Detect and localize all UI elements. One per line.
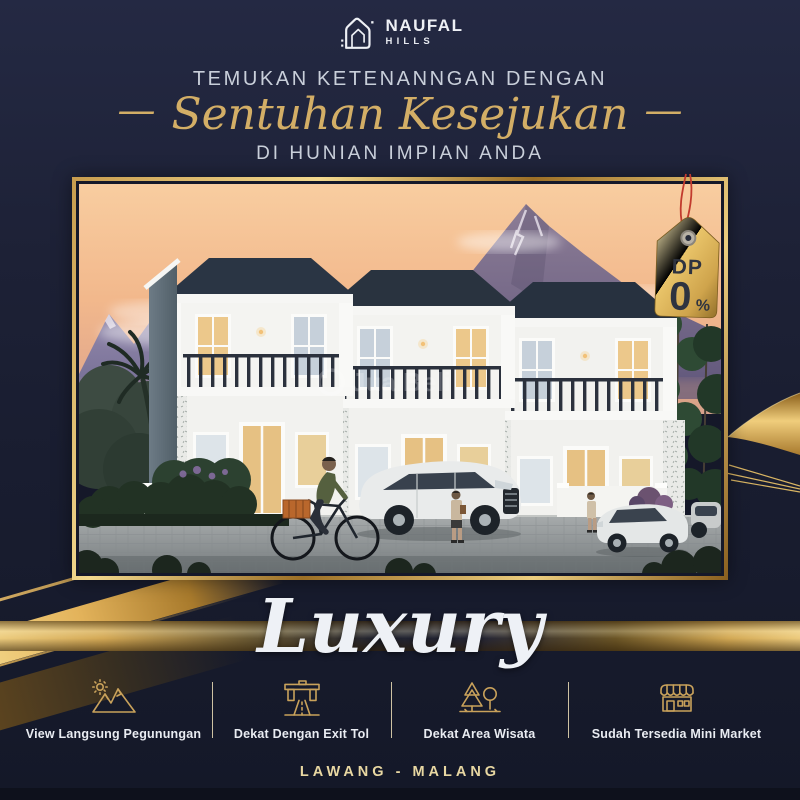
- location-label: LAWANG - MALANG: [0, 764, 800, 780]
- feature-label: Sudah Tersedia Mini Market: [592, 727, 762, 741]
- feature-toll-exit: Dekat Dengan Exit Tol: [219, 678, 385, 741]
- headline-bottom: DI HUNIAN IMPIAN ANDA: [0, 143, 800, 165]
- mountain-sun-icon: [91, 678, 137, 718]
- tourist-area-icon: [457, 678, 503, 718]
- feature-mini-market: Sudah Tersedia Mini Market: [575, 678, 779, 741]
- tag-dp-unit: %: [696, 297, 711, 314]
- house-render-image: JualBeli: [79, 184, 721, 573]
- feature-label: View Langsung Pegunungan: [26, 727, 201, 741]
- brand-name: NAUFAL: [386, 17, 464, 34]
- feature-divider: [391, 682, 392, 738]
- bottom-shade-strip: [0, 788, 800, 800]
- brand-subname: HILLS: [386, 37, 464, 47]
- tag-dp-value: 0: [668, 274, 692, 319]
- brand-logo: NAUFAL HILLS: [0, 12, 800, 52]
- feature-mountain-view: View Langsung Pegunungan: [22, 678, 206, 741]
- toll-exit-icon: [279, 678, 325, 718]
- mini-market-icon: [654, 678, 700, 718]
- sedan-car: [596, 504, 688, 557]
- headline-script: —Sentuhan Kesejukan—: [0, 88, 800, 140]
- svg-text:JualBeli: JualBeli: [351, 367, 451, 397]
- feature-label: Dekat Area Wisata: [424, 727, 536, 741]
- gold-swoosh-right: [723, 378, 800, 496]
- feature-divider: [212, 682, 213, 738]
- feature-tourist-area: Dekat Area Wisata: [398, 678, 562, 741]
- property-poster: NAUFAL HILLS TEMUKAN KETENANNGAN DENGAN …: [0, 0, 800, 800]
- feature-divider: [568, 682, 569, 738]
- photo-frame-inner: JualBeli: [76, 181, 724, 576]
- luxury-tagline: Luxury: [0, 584, 800, 670]
- feature-label: Dekat Dengan Exit Tol: [234, 727, 369, 741]
- headline-script-text: Sentuhan Kesejukan: [172, 89, 629, 140]
- right-dash: —: [645, 88, 683, 132]
- gold-photo-frame: JualBeli: [72, 177, 728, 580]
- house-logo-icon: [337, 12, 377, 52]
- dp-promo-tag: DP 0 %: [640, 166, 750, 336]
- suv-car: [357, 461, 521, 541]
- features-row: View Langsung Pegunungan Dekat Dengan Ex…: [0, 678, 800, 741]
- left-dash: —: [118, 88, 156, 132]
